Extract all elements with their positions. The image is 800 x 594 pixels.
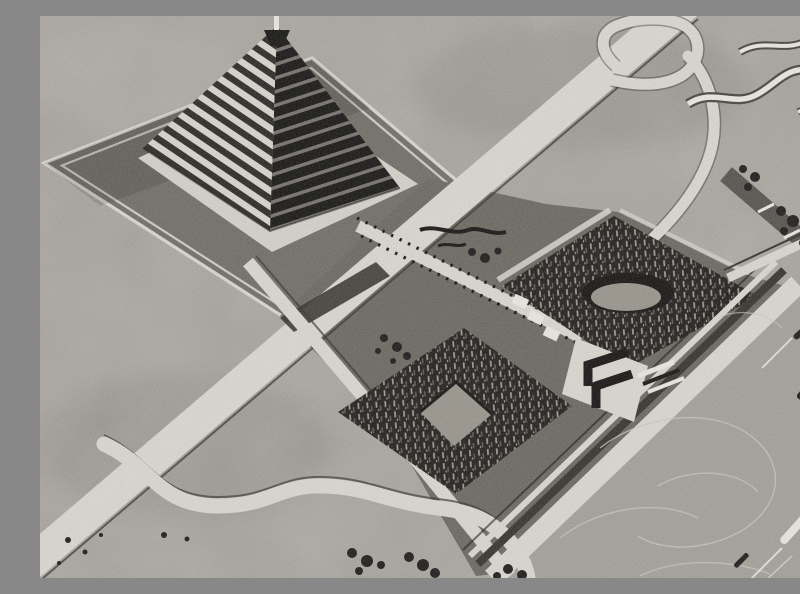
bush [161, 532, 167, 538]
light-patch [40, 26, 240, 126]
pyramid-summit-platform [264, 30, 290, 46]
quay-upper-walk [470, 262, 776, 556]
shrub [403, 352, 411, 360]
monument-chevron-lower [596, 374, 632, 408]
shrub [495, 248, 502, 255]
pyramid-left-face [143, 26, 277, 231]
quay-promenade [492, 284, 798, 578]
boat-wake [764, 556, 792, 578]
pyramid-right-face [270, 26, 400, 231]
hedge-wave [438, 244, 466, 246]
avenue-roadbed [248, 262, 510, 576]
creek-bank [688, 58, 800, 104]
monument-chevron-upper [588, 352, 628, 386]
bush [185, 537, 190, 542]
tree [417, 559, 429, 571]
bridge-road [728, 222, 800, 278]
causeway-shrub-cluster [420, 228, 506, 263]
monument-river-step [638, 362, 674, 376]
shade-patch [40, 376, 330, 516]
white-boat [779, 510, 800, 545]
grove-northwest-path [498, 210, 610, 280]
lower-grove-trees [338, 328, 572, 494]
pyramid-plaza [44, 58, 508, 352]
dark-boat-upstream [792, 313, 800, 340]
amphitheatre-rim [582, 273, 674, 313]
square-clearing [420, 382, 492, 446]
bottom-center-tree-clusters [347, 548, 527, 578]
highway-median-strip [280, 262, 390, 332]
quay-embankment [463, 256, 798, 578]
bridge-edge-shadow [724, 214, 800, 270]
bush [99, 533, 103, 537]
shrub [468, 248, 476, 256]
pyramid-right-face-shade [270, 26, 400, 231]
plaza-inner-border-path [62, 68, 494, 341]
boat-hull [779, 510, 800, 545]
curved-riverside-road [104, 435, 528, 578]
tree [503, 564, 513, 574]
creek-water [688, 58, 800, 104]
far-road-marking [784, 230, 800, 238]
tree [739, 165, 747, 173]
water-swirl [560, 508, 698, 538]
water-swirl [600, 418, 775, 547]
pyramid-entrance-mark [332, 187, 341, 194]
clearing-shadow-edge [420, 382, 492, 414]
curve-roadway [104, 444, 528, 578]
statue-causeway [357, 218, 585, 347]
pavilion [511, 294, 529, 309]
boat-wake [762, 338, 792, 368]
transverse-avenue [248, 256, 510, 576]
ground-mottle-texture [40, 16, 800, 578]
monument-terrace [562, 338, 648, 422]
creek-water [740, 32, 800, 52]
plaza-dark-corner [44, 58, 370, 206]
plaza-surface [44, 58, 508, 352]
dark-boat-midstream [796, 366, 800, 400]
boat-hull [796, 366, 800, 400]
main-highway [40, 16, 698, 578]
tree [750, 172, 760, 182]
pyramid-base-shadow-line [143, 148, 400, 231]
river [492, 230, 800, 578]
tree [517, 570, 527, 578]
boat-hull [733, 552, 749, 568]
causeway-path [358, 226, 582, 338]
archival-photo-figure: Aerial perspective drawing of a stepped-… [40, 16, 800, 578]
water-swirl [658, 473, 758, 492]
curve-road-edge-shadow [104, 435, 528, 569]
pyramid-apron-terrace [138, 92, 418, 252]
bridge-and-far-bank [724, 174, 800, 278]
avenue-edge-shadow [256, 256, 398, 422]
monument-river-step-shadow [643, 370, 679, 384]
forecourt-pavilions [505, 294, 568, 342]
river-water [492, 230, 800, 578]
river-boats [733, 313, 800, 578]
pavilion [543, 326, 561, 341]
creek-bank [740, 32, 800, 52]
bush [83, 550, 88, 555]
small-boat [733, 552, 749, 568]
tree [347, 548, 357, 558]
tree [377, 561, 385, 569]
ramp-roadway [590, 19, 714, 306]
river-swirls [560, 313, 782, 576]
quay-upper-edge [463, 256, 769, 550]
bush [65, 537, 71, 543]
highway-roadbed [40, 16, 686, 564]
tree-lined-far-road [726, 174, 800, 262]
boat-wake [748, 548, 782, 578]
tree [744, 183, 752, 191]
statue-row-south [361, 236, 585, 347]
grove-northeast-path [620, 210, 750, 274]
tree [776, 206, 786, 216]
pavilion [527, 310, 545, 325]
water-swirl [640, 563, 770, 576]
far-road-marking [758, 204, 774, 212]
shade-patch [410, 26, 750, 146]
ramp-shadow-edge [590, 19, 714, 306]
water-swirl [718, 313, 782, 328]
shrub [390, 358, 396, 364]
statue-row-north [357, 218, 579, 329]
plaza-outer-border-path [44, 58, 508, 352]
tree [404, 552, 414, 562]
aerial-perspective-scene: Aerial perspective drawing of a stepped-… [40, 16, 800, 578]
far-bank-tree-cluster [739, 165, 800, 271]
tree [361, 555, 373, 567]
amphitheatre-bowl [591, 283, 661, 311]
stepped-pyramid [138, 16, 418, 252]
boat-hull [792, 313, 800, 340]
shrub [375, 348, 381, 354]
shrub [380, 334, 388, 342]
upper-grove [498, 210, 758, 368]
tree [787, 215, 799, 227]
tree [493, 572, 501, 578]
light-patch [570, 406, 800, 578]
plaza-shrub-cluster [375, 334, 411, 364]
riverside-parkland [280, 178, 792, 576]
halftone-grain-overlay [40, 16, 800, 578]
bottom-left-bushes [57, 532, 190, 565]
hedge-wave [420, 228, 506, 233]
pyramid-spire [274, 16, 279, 30]
ground [40, 16, 800, 578]
ground-shading [40, 26, 800, 578]
monument-river-step [648, 378, 684, 392]
winding-creeks [688, 32, 800, 112]
shrub [392, 342, 402, 352]
tree [430, 568, 440, 578]
tree [780, 227, 788, 235]
upper-grove-trees [502, 216, 758, 368]
tree [355, 567, 363, 575]
zigzag-monument [562, 338, 684, 422]
shrub [480, 253, 490, 263]
lower-grove [338, 328, 572, 494]
highway-edge-shadow [42, 19, 698, 578]
quay-retaining-wall [478, 270, 784, 564]
loop-interchange-ramp [590, 19, 714, 306]
